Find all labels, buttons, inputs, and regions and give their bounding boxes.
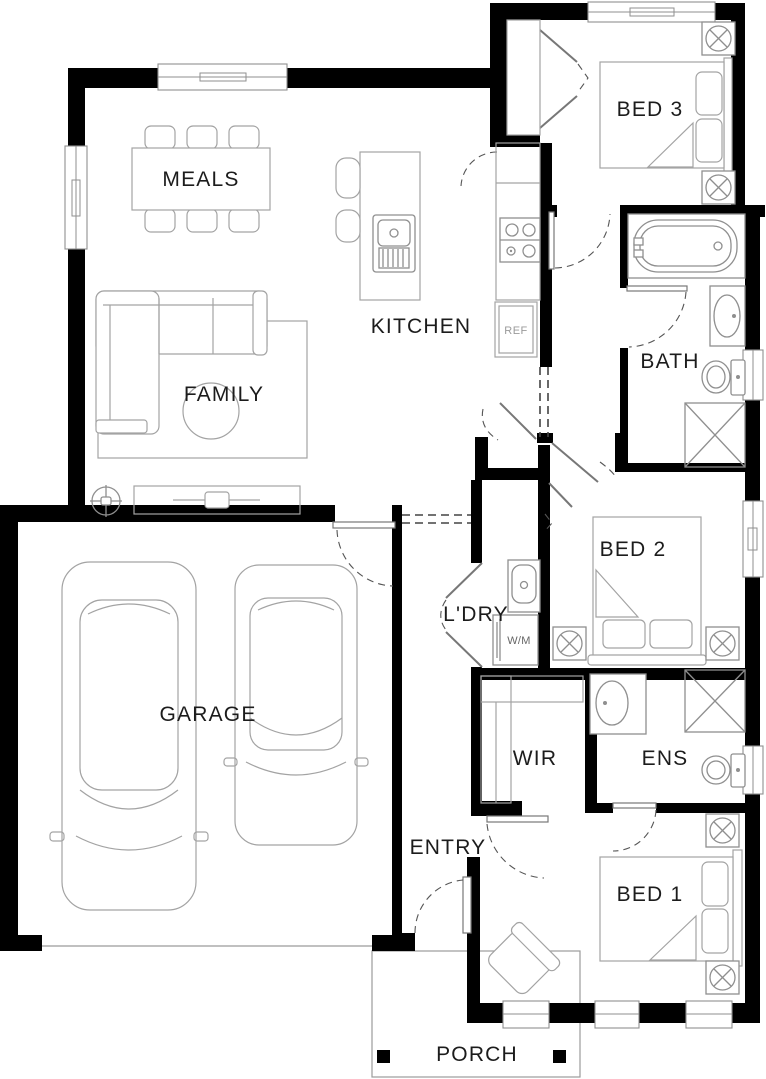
dining-chair: [145, 126, 175, 149]
dining-chair: [187, 126, 217, 149]
bed3-robe: [507, 20, 540, 135]
fan-symbol-bed2-right: [706, 627, 739, 660]
pillow: [702, 909, 728, 953]
porch-post: [377, 1050, 390, 1063]
car-large: [50, 562, 208, 910]
laundry-tub-icon: [508, 560, 540, 612]
front-door: [415, 877, 471, 933]
garage-cars: [50, 562, 368, 910]
armchair: [483, 920, 562, 999]
dining-chair: [229, 209, 259, 232]
kitchen-opening-arc: [461, 152, 497, 186]
room-label-meals: MEALS: [162, 168, 239, 191]
bed1-headboard: [733, 850, 742, 966]
bed3-robe-doors: [540, 30, 588, 128]
dining-chair: [145, 209, 175, 232]
fan-symbol-bed1-bottom: [706, 961, 739, 994]
floor-plan-canvas: REF: [0, 0, 766, 1079]
island-bench: [336, 152, 420, 300]
window-bath-right: [743, 350, 763, 400]
floor-plan: REF: [0, 0, 766, 1079]
wir-shelves: [481, 676, 583, 803]
bath-toilet-icon: [702, 360, 745, 395]
ens-toilet-icon: [702, 754, 745, 787]
pillow: [696, 72, 722, 115]
sofa: [96, 291, 267, 434]
pillow: [696, 119, 722, 162]
stool: [336, 210, 360, 242]
window-bed3-top: [588, 2, 715, 22]
window-ens-right: [743, 746, 763, 794]
room-label-porch: PORCH: [436, 1043, 518, 1066]
stool: [336, 158, 360, 198]
room-label-bed1: BED 1: [617, 883, 684, 906]
porch-post: [553, 1050, 566, 1063]
room-label-garage: GARAGE: [159, 703, 256, 726]
window-meals-top: [158, 64, 287, 90]
kitchen-sink-icon: [373, 215, 415, 272]
ens-vanity: [590, 674, 646, 734]
pillow: [702, 862, 728, 906]
wir-door: [487, 816, 548, 878]
bath-shower: [685, 403, 745, 467]
room-label-bath: BATH: [640, 350, 699, 373]
bath-vanity: [710, 286, 745, 346]
window-bed2-right: [743, 501, 763, 577]
room-label-wir: WIR: [513, 747, 557, 770]
room-label-ens: ENS: [642, 747, 689, 770]
cooktop-icon: [500, 218, 540, 262]
bath-fixtures: [628, 214, 745, 467]
room-label-bed3: BED 3: [617, 98, 684, 121]
room-label-laundry: L'DRY: [443, 603, 509, 626]
fan-symbol-bed2-left: [553, 627, 586, 660]
garage-access-door: [333, 522, 395, 586]
bathtub-icon: [628, 214, 745, 278]
window-bed1-bottom-1: [503, 1001, 549, 1028]
room-label-bed2: BED 2: [600, 538, 667, 561]
window-bed1-bottom-2: [595, 1001, 639, 1028]
window-meals-left: [65, 146, 87, 249]
pillow: [650, 620, 692, 648]
bath-door: [627, 286, 687, 347]
fridge-label: REF: [504, 325, 528, 337]
pillow: [603, 620, 645, 648]
bed3-headboard: [724, 58, 732, 172]
dining-chair: [229, 126, 259, 149]
washer-label: W/M: [507, 635, 531, 647]
bed3-hall-door: [549, 212, 610, 269]
fan-symbol-bed3-bottom: [702, 171, 735, 204]
dining-chair: [187, 209, 217, 232]
bed2-base: [588, 655, 706, 665]
window-bed1-bottom-3: [686, 1001, 732, 1028]
fridge-space: REF: [495, 302, 537, 357]
fan-symbol-bed1-top: [706, 814, 739, 847]
room-label-entry: ENTRY: [410, 836, 487, 859]
tv-icon: [205, 492, 229, 508]
fan-symbol-bed3-top: [702, 22, 735, 55]
room-label-family: FAMILY: [184, 383, 264, 406]
ens-door: [613, 803, 656, 851]
room-label-kitchen: KITCHEN: [371, 315, 472, 338]
